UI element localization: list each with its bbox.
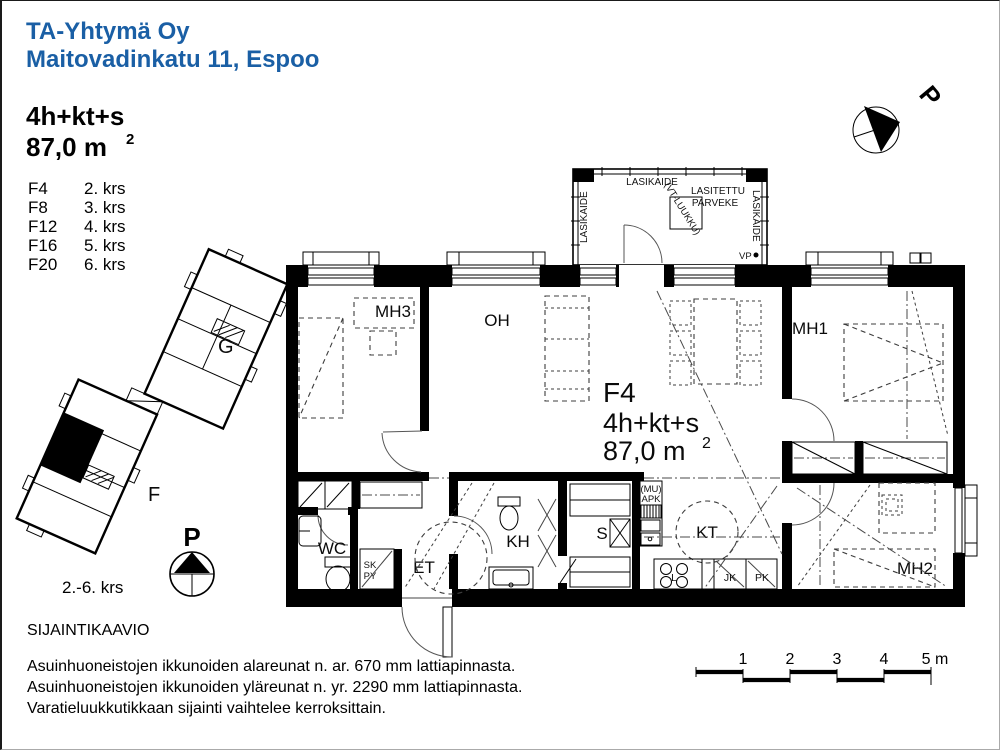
dining-set [670, 299, 761, 385]
site-compass-icon: P [170, 522, 214, 596]
floor-unit: F16 [28, 236, 57, 255]
header: TA-Yhtymä Oy Maitovadinkatu 11, Espoo 4h… [26, 18, 319, 162]
glazed-balcony-label-2: PARVEKE [692, 198, 739, 209]
floor-unit: F12 [28, 217, 57, 236]
note-line: Asuinhuoneistojen ikkunoiden alareunat n… [27, 658, 515, 675]
apartment-id: F4 4h+kt+s 87,0 m 2 [603, 377, 711, 466]
desk [879, 483, 935, 533]
floor-level: 6. krs [84, 255, 126, 274]
plan-sheet: TA-Yhtymä Oy Maitovadinkatu 11, Espoo 4h… [0, 0, 1000, 750]
room-label-kt: KT [696, 523, 718, 542]
toilet [498, 497, 520, 506]
scale-tick: 4 [880, 651, 889, 668]
balcony-post [573, 169, 594, 182]
floor-level: 3. krs [84, 198, 126, 217]
room-label-wc: WC [318, 539, 346, 558]
sofa [545, 296, 589, 401]
site-compass-label: P [183, 522, 200, 552]
nightstand [370, 331, 396, 355]
scale-tick: 2 [786, 651, 795, 668]
floors-range: 2.-6. krs [62, 578, 123, 597]
scale-tick: 5 m [922, 651, 949, 668]
apartment-area: 87,0 m [26, 132, 107, 162]
glazed-balcony-label-1: LASITETTU [691, 186, 745, 197]
plan-area: 87,0 m [603, 436, 686, 466]
scale-bar: 1 2 3 4 5 m [696, 651, 948, 685]
note-line: Varatieluukkutikkaan sijainti vaihtelee … [27, 700, 386, 717]
room-label-mh3: MH3 [375, 302, 411, 321]
balcony-post [746, 169, 767, 182]
floor-level: 4. krs [84, 217, 126, 236]
notes: Asuinhuoneistojen ikkunoiden alareunat n… [27, 658, 522, 717]
stove-label: L [671, 572, 677, 584]
fridge-label: JK [724, 572, 736, 584]
room-label-kh: KH [506, 532, 530, 551]
plan-type: 4h+kt+s [603, 408, 699, 438]
room-label-mh1: MH1 [792, 319, 828, 338]
scale-tick: 3 [833, 651, 842, 668]
doors [318, 399, 834, 657]
company-name: TA-Yhtymä Oy [26, 18, 190, 45]
dishwasher-hatch [641, 505, 661, 518]
apartment-area-sup: 2 [126, 131, 134, 148]
room-label-s: S [596, 524, 607, 543]
plan-drawing: TA-Yhtymä Oy Maitovadinkatu 11, Espoo 4h… [2, 1, 1000, 750]
vent-icon [910, 253, 920, 263]
floor-unit: F20 [28, 255, 57, 274]
bed [844, 324, 943, 401]
balcony-rail-right-label: LASIKAIDE [750, 190, 761, 242]
dishwasher-label: APK [641, 494, 661, 505]
note-line: Asuinhuoneistojen ikkunoiden yläreunat n… [27, 679, 522, 696]
floor-unit: F8 [28, 198, 48, 217]
site-caption: SIJAINTIKAAVIO [27, 622, 149, 639]
balcony: LASIKAIDE LASIKAIDE LASIKAIDE LASITETTU … [571, 167, 769, 265]
building-g-label: G [218, 336, 234, 358]
water-point-label: VP [739, 251, 752, 262]
north-label: P [913, 80, 947, 113]
plan-area-sup: 2 [702, 435, 711, 452]
floor-list: F4 2. krs F8 3. krs F12 4. krs F16 5. kr… [28, 179, 126, 274]
balcony-rail-left-label: LASIKAIDE [579, 191, 590, 243]
water-point-icon [754, 253, 759, 258]
north-arrow-icon: P [853, 80, 948, 153]
apartment-type: 4h+kt+s [26, 101, 124, 131]
site-plan: G F 2.-6. krs SIJAINTIKAAVIO P [7, 212, 297, 639]
address: Maitovadinkatu 11, Espoo [26, 46, 319, 73]
floor-level: 5. krs [84, 236, 126, 255]
freezer-label: PK [755, 572, 769, 584]
scale-tick: 1 [739, 651, 748, 668]
vent-icon [921, 253, 931, 263]
floor-level: 2. krs [84, 179, 126, 198]
closet-label-sk: SK [364, 560, 377, 571]
building-f-label: F [148, 484, 160, 506]
plan-unit: F4 [603, 377, 636, 408]
room-label-oh: OH [484, 311, 510, 330]
wc-fixtures: SK PY [299, 516, 394, 592]
floor-unit: F4 [28, 179, 48, 198]
